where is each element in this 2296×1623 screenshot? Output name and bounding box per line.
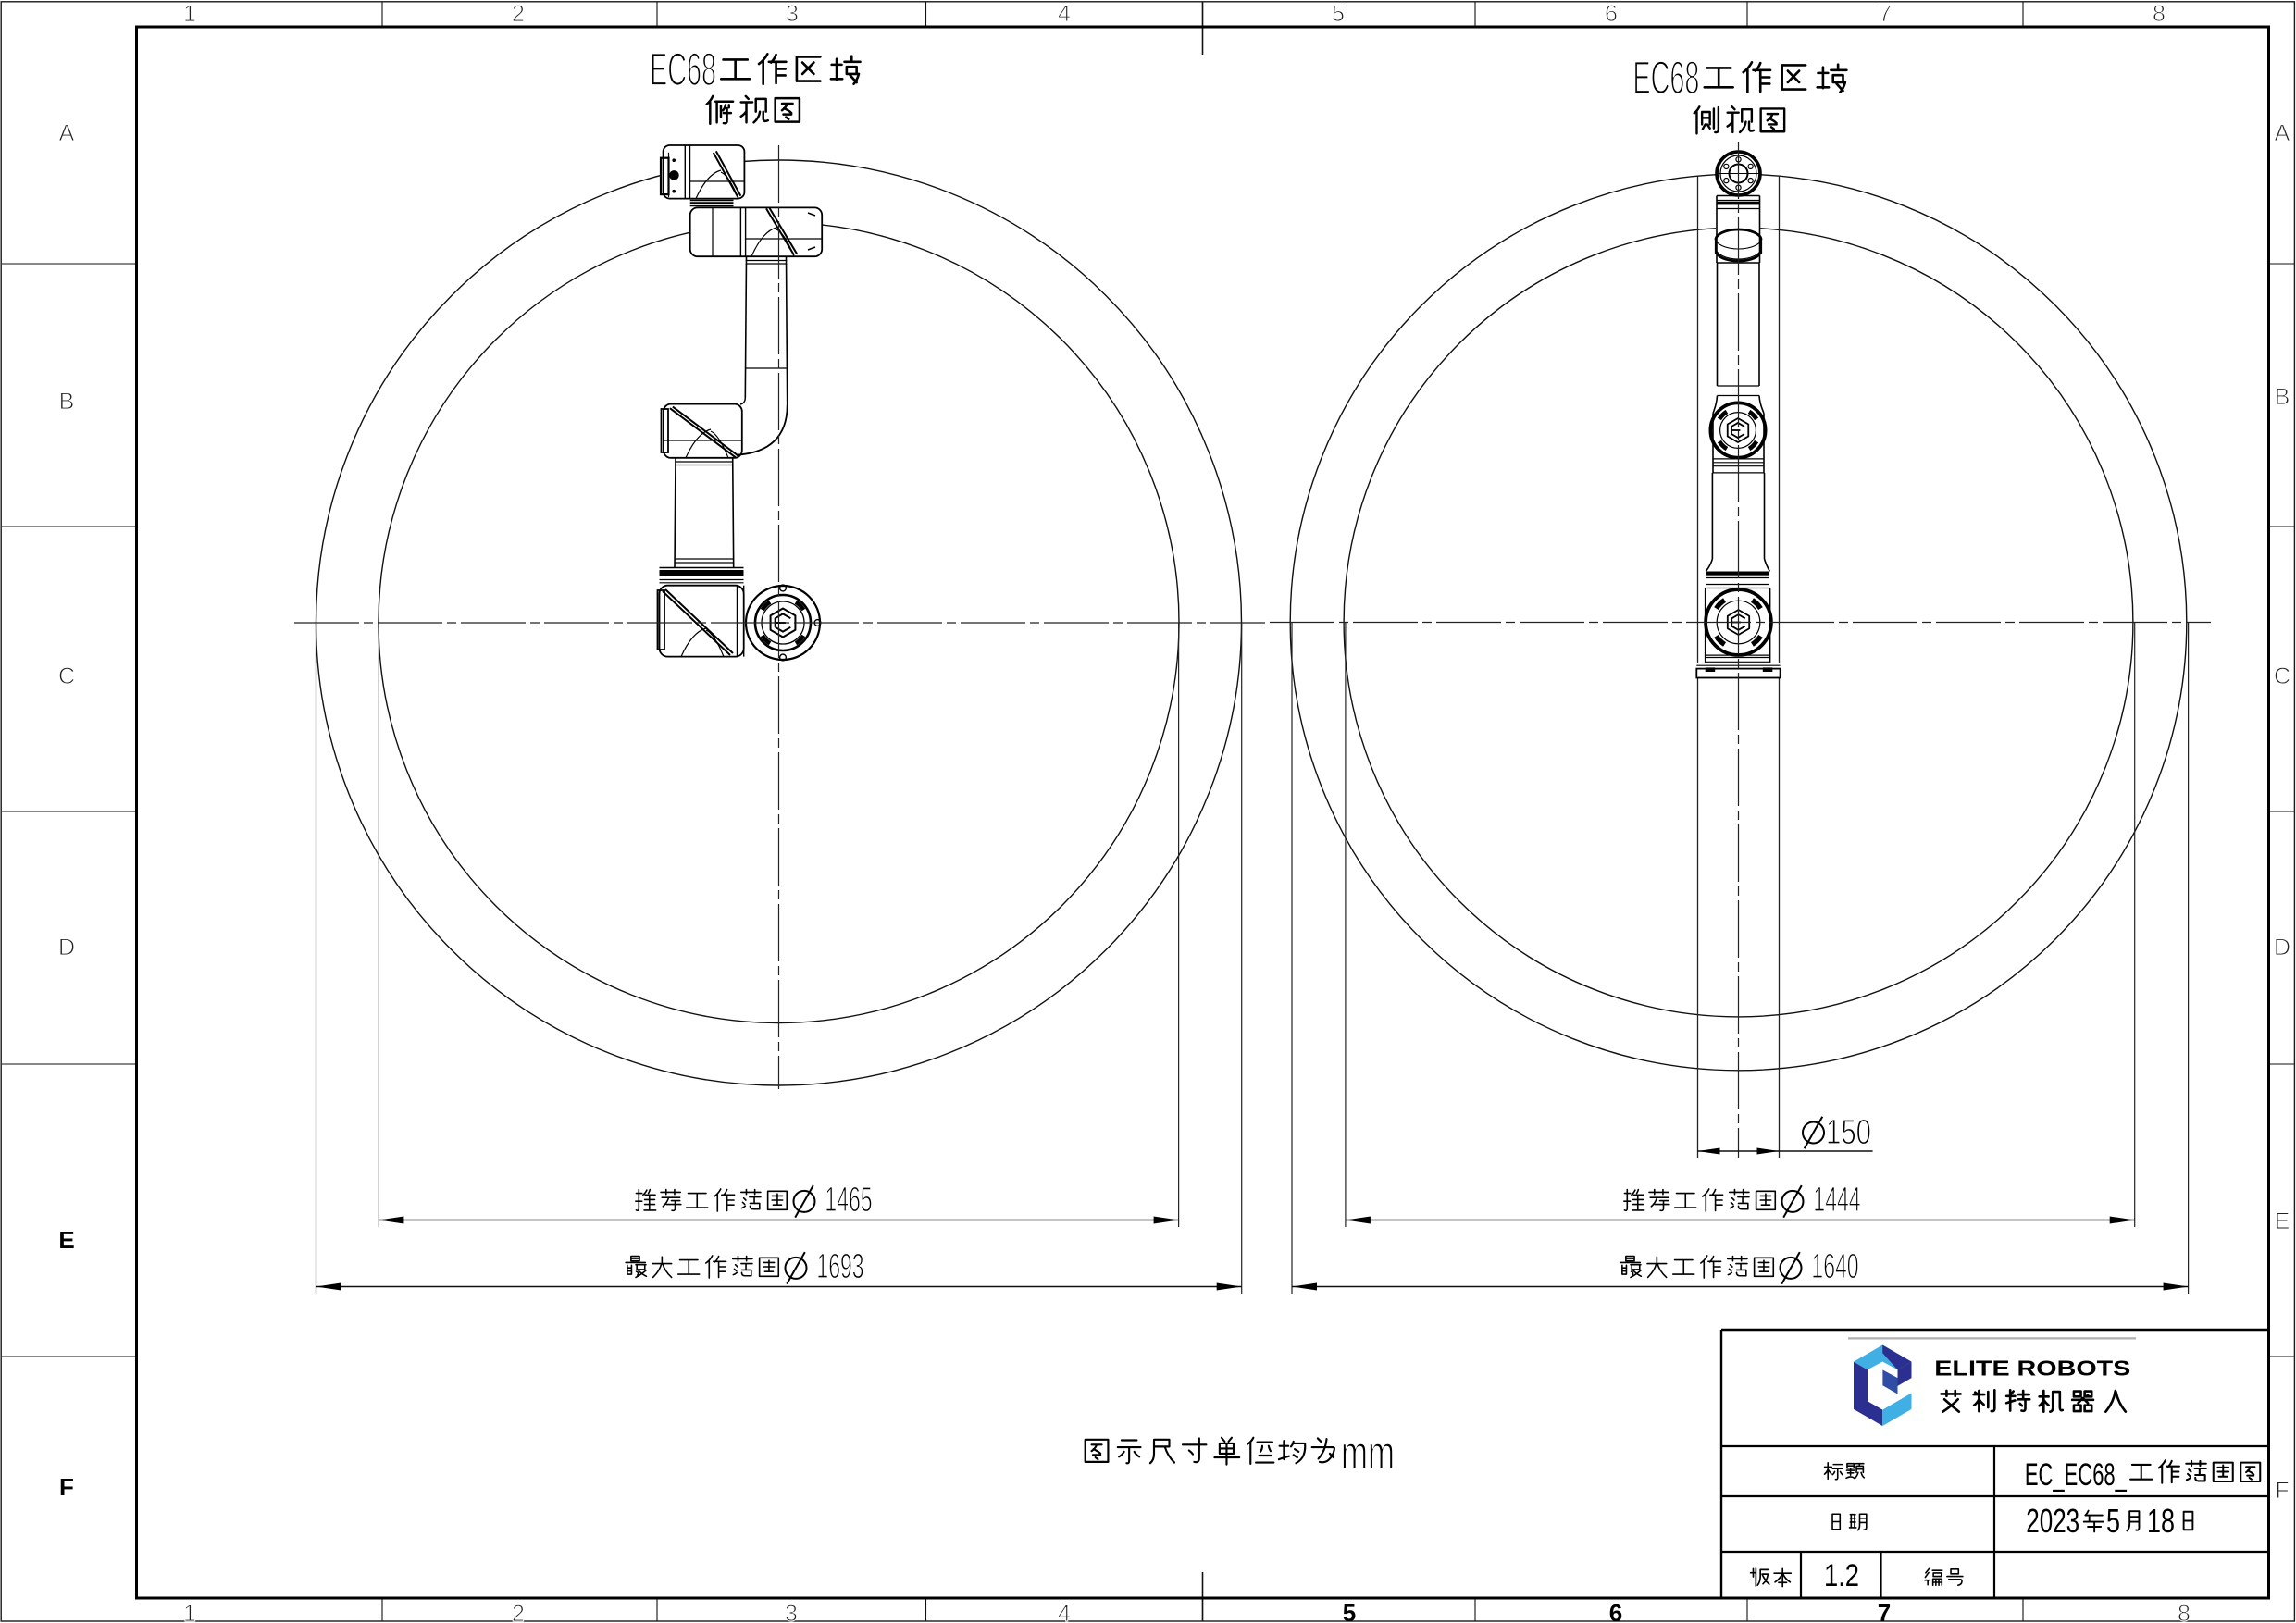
svg-text:B: B <box>59 389 75 415</box>
svg-text:2: 2 <box>512 1601 525 1623</box>
svg-text:6: 6 <box>1609 1599 1622 1623</box>
svg-text:1: 1 <box>183 1 196 27</box>
svg-text:E: E <box>58 1226 74 1254</box>
svg-text:6: 6 <box>1605 1 1618 27</box>
svg-text:mm: mm <box>1341 1427 1395 1479</box>
svg-text:D: D <box>2274 935 2290 960</box>
svg-text:B: B <box>2275 384 2290 410</box>
svg-text:7: 7 <box>1879 1 1892 27</box>
svg-text:5: 5 <box>1343 1599 1356 1623</box>
svg-text:F: F <box>2275 1478 2289 1504</box>
svg-text:5: 5 <box>1332 1 1345 27</box>
svg-text:2: 2 <box>512 1 525 27</box>
svg-text:EC68: EC68 <box>650 43 716 95</box>
svg-text:150: 150 <box>1826 1113 1871 1152</box>
svg-text:3: 3 <box>785 1601 798 1623</box>
svg-text:8: 8 <box>2153 1 2166 27</box>
svg-text:1465: 1465 <box>825 1181 872 1220</box>
svg-text:D: D <box>58 935 75 960</box>
svg-text:5: 5 <box>2106 1502 2120 1540</box>
svg-text:1640: 1640 <box>1811 1247 1858 1286</box>
svg-text:1: 1 <box>183 1601 196 1623</box>
svg-text:A: A <box>2275 120 2290 146</box>
svg-text:1444: 1444 <box>1813 1181 1860 1220</box>
svg-text:A: A <box>59 120 75 146</box>
svg-text:2023: 2023 <box>2026 1502 2079 1540</box>
svg-text:3: 3 <box>786 1 799 27</box>
svg-text:1693: 1693 <box>816 1247 863 1286</box>
svg-text:C: C <box>2274 663 2290 689</box>
svg-text:EC_EC68_: EC_EC68_ <box>2025 1457 2128 1493</box>
svg-text:1.2: 1.2 <box>1824 1558 1859 1593</box>
svg-text:ELITE ROBOTS: ELITE ROBOTS <box>1934 1357 2130 1381</box>
svg-text:8: 8 <box>2178 1601 2191 1623</box>
svg-text:EC68: EC68 <box>1632 52 1699 104</box>
svg-text:4: 4 <box>1058 1601 1071 1623</box>
svg-text:18: 18 <box>2147 1502 2175 1540</box>
svg-text:F: F <box>59 1473 74 1501</box>
svg-text:E: E <box>2275 1208 2290 1234</box>
svg-text:C: C <box>58 663 75 689</box>
svg-text:4: 4 <box>1058 1 1071 27</box>
svg-text:7: 7 <box>1878 1599 1891 1623</box>
